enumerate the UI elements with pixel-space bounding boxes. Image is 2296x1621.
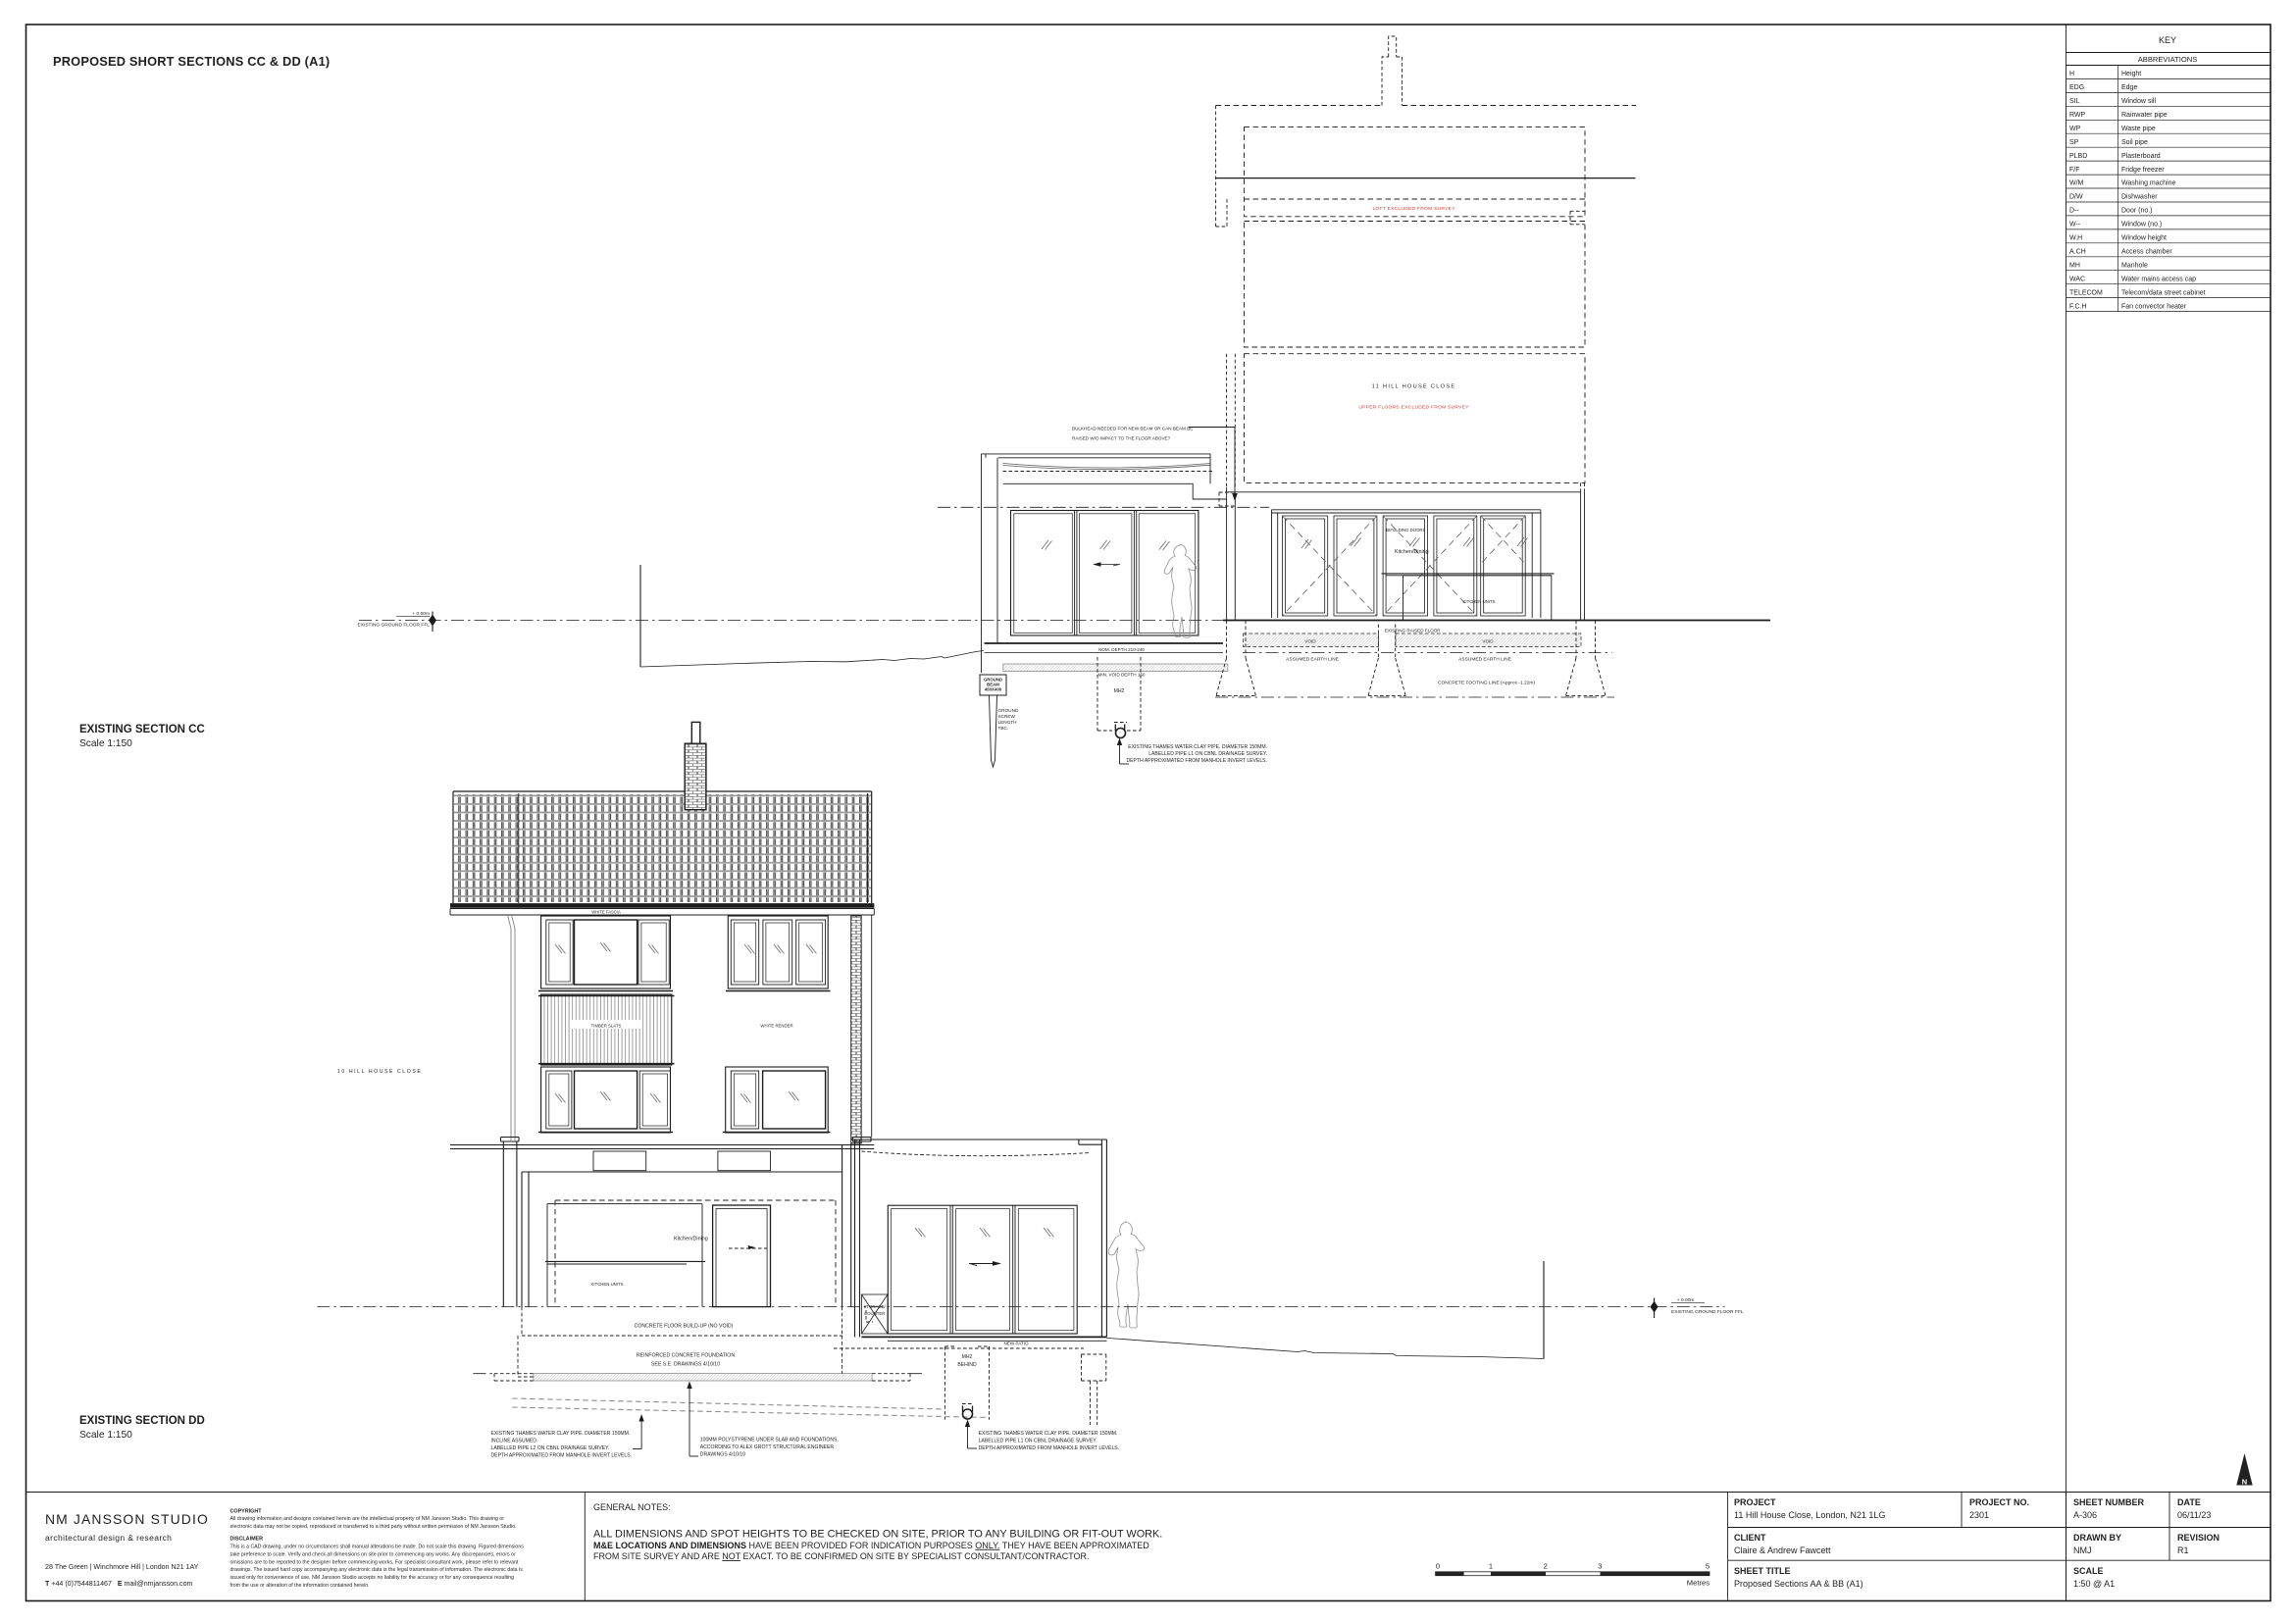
svg-text:EXISTING GROUND FLOOR FFL: EXISTING GROUND FLOOR FFL	[358, 623, 431, 629]
svg-text:Edge: Edge	[2121, 84, 2137, 91]
svg-text:CLIENT: CLIENT	[1734, 1533, 1766, 1543]
svg-text:100MM POLYSTYRENE UNDER SLAB A: 100MM POLYSTYRENE UNDER SLAB AND FOUNDAT…	[700, 1438, 839, 1444]
svg-text:LABELLED PIPE L2 ON CBNL DRAIN: LABELLED PIPE L2 ON CBNL DRAINAGE SURVEY…	[491, 1445, 610, 1451]
svg-text:SCALE: SCALE	[2073, 1566, 2104, 1576]
svg-text:W.H: W.H	[2069, 235, 2082, 242]
svg-text:DRAWN BY: DRAWN BY	[2073, 1533, 2121, 1543]
svg-text:Metres: Metres	[1687, 1579, 1709, 1588]
svg-text:SP: SP	[2069, 139, 2079, 146]
svg-text:F.C.H: F.C.H	[2069, 303, 2087, 310]
svg-text:Height: Height	[2121, 71, 2141, 77]
svg-text:VOID: VOID	[1304, 639, 1316, 644]
svg-text:DATE: DATE	[2177, 1497, 2201, 1507]
svg-text:SIL: SIL	[2069, 98, 2080, 105]
svg-text:Kitchen/Dining: Kitchen/Dining	[1395, 549, 1429, 555]
svg-text:MH: MH	[2069, 262, 2080, 269]
svg-text:SHEET NUMBER: SHEET NUMBER	[2073, 1497, 2145, 1507]
svg-text:REINFORCED CONCRETE FOUNDATION: REINFORCED CONCRETE FOUNDATION	[637, 1353, 735, 1359]
svg-text:WHITE FASCIA: WHITE FASCIA	[591, 910, 621, 915]
svg-text:TIMBER SLATS: TIMBER SLATS	[591, 1024, 622, 1029]
svg-text:1: 1	[1489, 1562, 1493, 1571]
svg-text:EXISTING THAMES WATER CLAY PIP: EXISTING THAMES WATER CLAY PIPE. DIAMETE…	[979, 1431, 1118, 1437]
svg-text:EXISTING RAISED FLOOR: EXISTING RAISED FLOOR	[1385, 629, 1442, 633]
svg-text:11 Hill House Close, London, N: 11 Hill House Close, London, N21 1LG	[1734, 1510, 1885, 1520]
svg-text:MIN. VOID DEPTH 150: MIN. VOID DEPTH 150	[1098, 673, 1146, 678]
svg-text:Window (no.): Window (no.)	[2121, 222, 2162, 228]
svg-text:WHITE RENDER: WHITE RENDER	[760, 1024, 792, 1029]
svg-text:Fan convector heater: Fan convector heater	[2121, 303, 2187, 310]
svg-text:ASSUMED EARTH LINE: ASSUMED EARTH LINE	[1458, 657, 1512, 663]
svg-text:GROUND: GROUND	[998, 708, 1019, 713]
svg-text:CONCRETE FOOTING LINE (Approx: CONCRETE FOOTING LINE (Approx -1.22m)	[1438, 681, 1535, 686]
svg-text:Scale 1:150: Scale 1:150	[79, 1430, 132, 1441]
svg-text:NOM. DEPTH 210-240: NOM. DEPTH 210-240	[1098, 647, 1145, 652]
svg-text:Water mains access cap: Water mains access cap	[2121, 276, 2196, 282]
svg-text:06/11/23: 06/11/23	[2177, 1510, 2211, 1520]
svg-text:Waste pipe: Waste pipe	[2121, 126, 2156, 132]
svg-text:BULKHEAD NEEDED FOR NEW BEAM O: BULKHEAD NEEDED FOR NEW BEAM OR CAN BEAM…	[1072, 427, 1193, 431]
svg-text:ACCORDING TO ALEX GROTT STRUCT: ACCORDING TO ALEX GROTT STRUCTURAL ENGIN…	[700, 1444, 835, 1450]
svg-text:Dishwasher: Dishwasher	[2121, 194, 2158, 201]
svg-text:450X400: 450X400	[985, 687, 1002, 692]
svg-text:D/W: D/W	[2069, 194, 2083, 201]
svg-text:Kitchen/Dining: Kitchen/Dining	[674, 1237, 708, 1242]
svg-text:RWP: RWP	[2069, 112, 2086, 119]
svg-text:NMJ: NMJ	[2073, 1545, 2092, 1555]
svg-text:architectural design & researc: architectural design & research	[45, 1533, 172, 1543]
svg-text:DISCLAIMER: DISCLAIMER	[230, 1537, 264, 1543]
svg-text:Window sill: Window sill	[2121, 98, 2156, 105]
svg-text:EXISTING SECTION CC: EXISTING SECTION CC	[79, 724, 205, 735]
svg-text:D--: D--	[2069, 208, 2079, 215]
svg-text:BEHIND: BEHIND	[957, 1362, 977, 1368]
svg-text:Telecom/data street cabinet: Telecom/data street cabinet	[2121, 289, 2206, 296]
svg-text:electronic data may not be cop: electronic data may not be copied, repro…	[230, 1524, 517, 1530]
svg-text:WAC: WAC	[2069, 276, 2085, 282]
svg-text:ASSUMED EARTH LINE: ASSUMED EARTH LINE	[1286, 657, 1340, 663]
svg-text:COUNTER: COUNTER	[864, 1311, 885, 1316]
svg-text:10 HILL HOUSE CLOSE: 10 HILL HOUSE CLOSE	[337, 1069, 422, 1075]
svg-text:drawings. The issued hard copy: drawings. The issued hard copy accompany…	[230, 1567, 524, 1573]
svg-text:R1: R1	[2177, 1545, 2189, 1555]
svg-text:WP: WP	[2069, 126, 2081, 132]
svg-text:DEPTH APPROXIMATED FROM MANHOL: DEPTH APPROXIMATED FROM MANHOLE INVERT L…	[979, 1445, 1120, 1451]
svg-text:A.CH: A.CH	[2069, 249, 2086, 256]
svg-text:NM JANSSON STUDIO: NM JANSSON STUDIO	[45, 1511, 209, 1527]
svg-text:from the use or alteration of: from the use or alteration of the inform…	[230, 1583, 370, 1589]
svg-text:A-306: A-306	[2073, 1510, 2097, 1520]
svg-text:ABBREVIATIONS: ABBREVIATIONS	[2138, 55, 2198, 64]
svg-text:SCREW: SCREW	[998, 714, 1016, 719]
svg-text:EDG: EDG	[2069, 84, 2084, 91]
svg-text:PROJECT: PROJECT	[1734, 1497, 1776, 1507]
svg-text:take preference to scale. Veri: take preference to scale. Verify and che…	[230, 1551, 516, 1557]
svg-text:EXISTING SECTION DD: EXISTING SECTION DD	[79, 1415, 205, 1427]
svg-text:PROJECT NO.: PROJECT NO.	[1969, 1497, 2029, 1507]
svg-text:REVISION: REVISION	[2177, 1533, 2219, 1543]
svg-text:EXISTING THAMES WATER CLAY PIP: EXISTING THAMES WATER CLAY PIPE. DIAMETE…	[491, 1431, 631, 1437]
svg-text:INCLINE ASSUMED.: INCLINE ASSUMED.	[491, 1439, 538, 1444]
svg-text:H: H	[2069, 71, 2074, 77]
svg-text:PROPOSED SHORT SECTIONS CC & D: PROPOSED SHORT SECTIONS CC & DD (A1)	[53, 54, 330, 69]
svg-text:LABELLED PIPE L1 ON CBNL DRAIN: LABELLED PIPE L1 ON CBNL DRAINAGE SURVEY…	[1148, 751, 1267, 757]
svg-text:28 The Green | Winchmore Hill: 28 The Green | Winchmore Hill | London N…	[45, 1563, 199, 1571]
svg-text:Proposed Sections AA & BB (A1): Proposed Sections AA & BB (A1)	[1734, 1579, 1863, 1589]
svg-text:Rainwater pipe: Rainwater pipe	[2121, 112, 2168, 119]
svg-text:ALL DIMENSIONS AND SPOT HEIGHT: ALL DIMENSIONS AND SPOT HEIGHTS TO BE CH…	[593, 1529, 1162, 1541]
svg-text:LOFT EXCLUDED FROM SURVEY: LOFT EXCLUDED FROM SURVEY	[1372, 206, 1455, 212]
svg-text:PLBD: PLBD	[2069, 153, 2087, 160]
svg-text:5: 5	[1706, 1562, 1709, 1571]
svg-text:T +44 (0)7544811467 E mail@n: T +44 (0)7544811467 E mail@nmjansson.com	[45, 1580, 193, 1588]
svg-text:issued only for convenience of: issued only for convenience of use. NM J…	[230, 1575, 515, 1581]
svg-text:Door (no.): Door (no.)	[2121, 208, 2153, 215]
svg-text:KEY: KEY	[2159, 35, 2176, 45]
svg-text:BIFOLDING DOORS: BIFOLDING DOORS	[1386, 528, 1425, 532]
svg-text:W--: W--	[2069, 222, 2081, 228]
svg-text:0: 0	[1436, 1562, 1440, 1571]
svg-text:Washing machine: Washing machine	[2121, 180, 2175, 187]
svg-text:LABELLED PIPE L1 ON CBNL DRAIN: LABELLED PIPE L1 ON CBNL DRAINAGE SURVEY…	[979, 1439, 1097, 1444]
svg-text:2301: 2301	[1969, 1510, 1989, 1520]
svg-text:DRAWINGS 4/10/10: DRAWINGS 4/10/10	[700, 1452, 745, 1458]
svg-text:Claire & Andrew Fawcett: Claire & Andrew Fawcett	[1734, 1545, 1831, 1555]
svg-text:Plasterboard: Plasterboard	[2121, 153, 2161, 160]
svg-text:Soil pipe: Soil pipe	[2121, 139, 2148, 146]
svg-text:CONCRETE FLOOR BUILD-UP (NO VO: CONCRETE FLOOR BUILD-UP (NO VOID)	[635, 1324, 734, 1330]
svg-text:LENGTH: LENGTH	[998, 720, 1017, 725]
svg-text:Window height: Window height	[2121, 235, 2167, 242]
svg-text:GENERAL NOTES:: GENERAL NOTES:	[593, 1502, 671, 1512]
svg-text:All drawing information and de: All drawing information and designs cont…	[230, 1516, 505, 1522]
svg-text:TELECOM: TELECOM	[2069, 289, 2103, 296]
svg-text:2: 2	[1544, 1562, 1548, 1571]
svg-text:FROM SITE SURVEY AND ARE NOT E: FROM SITE SURVEY AND ARE NOT EXACT. TO B…	[593, 1551, 1089, 1561]
svg-text:This is a CAD drawing, under n: This is a CAD drawing, under no circumst…	[230, 1545, 525, 1550]
svg-text:DEPTH APPROXIMATED FROM MANHOL: DEPTH APPROXIMATED FROM MANHOLE INVERT L…	[491, 1453, 633, 1459]
svg-text:11 HILL HOUSE CLOSE: 11 HILL HOUSE CLOSE	[1372, 384, 1456, 390]
svg-text:MH2: MH2	[1114, 688, 1125, 694]
svg-text:Scale 1:150: Scale 1:150	[79, 738, 132, 749]
svg-text:EXISTING THAMES WATER CLAY PIP: EXISTING THAMES WATER CLAY PIPE. DIAMETE…	[1128, 744, 1267, 750]
svg-text:VOID: VOID	[1482, 639, 1494, 644]
svg-text:NEW PATIO: NEW PATIO	[1003, 1342, 1029, 1346]
svg-text:SHEET TITLE: SHEET TITLE	[1734, 1566, 1791, 1576]
svg-text:Access chamber: Access chamber	[2121, 249, 2172, 256]
svg-text:DEPTH APPROXIMATED FROM MANHOL: DEPTH APPROXIMATED FROM MANHOLE INVERT L…	[1126, 758, 1267, 764]
svg-text:M&E LOCATIONS AND DIMENSIONS H: M&E LOCATIONS AND DIMENSIONS HAVE BEEN P…	[593, 1541, 1149, 1550]
svg-text:Manhole: Manhole	[2121, 262, 2148, 269]
svg-text:+ 0.00m: + 0.00m	[412, 611, 430, 617]
svg-text:1:50 @ A1: 1:50 @ A1	[2073, 1579, 2115, 1589]
svg-text:KITCHEN UNITS: KITCHEN UNITS	[591, 1282, 624, 1287]
svg-text:TBC.: TBC.	[998, 726, 1009, 731]
svg-text:KITCHEN UNITS: KITCHEN UNITS	[1463, 599, 1496, 604]
svg-text:SEE S.E. DRAWINGS 4/10/10: SEE S.E. DRAWINGS 4/10/10	[651, 1362, 720, 1368]
svg-text:Fridge freezer: Fridge freezer	[2121, 167, 2165, 174]
svg-text:UPPER FLOORS EXCLUDED FROM SUR: UPPER FLOORS EXCLUDED FROM SURVEY	[1358, 405, 1469, 411]
svg-text:RAISED W/O IMPACT TO THE FLOOR: RAISED W/O IMPACT TO THE FLOOR ABOVE?	[1072, 436, 1171, 441]
svg-text:W/M: W/M	[2069, 180, 2084, 187]
svg-text:N: N	[2242, 1478, 2247, 1487]
svg-text:+ 0.00m: + 0.00m	[1677, 1297, 1695, 1303]
svg-text:COPYRIGHT: COPYRIGHT	[230, 1509, 263, 1515]
svg-text:3: 3	[1598, 1562, 1602, 1571]
svg-text:omissions are to be reported t: omissions are to be reported to the desi…	[230, 1559, 519, 1565]
svg-text:F/F: F/F	[2069, 167, 2080, 174]
svg-text:EXISTING GROUND FLOOR FFL: EXISTING GROUND FLOOR FFL	[1671, 1309, 1744, 1315]
svg-text:MH2: MH2	[962, 1354, 973, 1360]
